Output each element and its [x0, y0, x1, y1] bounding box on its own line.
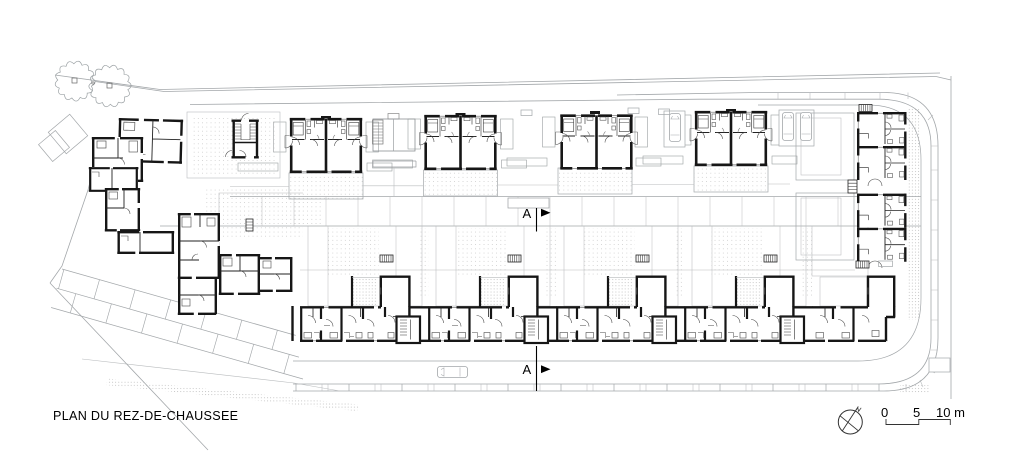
svg-text:0: 0: [881, 405, 888, 420]
svg-text:A: A: [523, 206, 532, 221]
svg-text:10 m: 10 m: [936, 405, 965, 420]
svg-text:A: A: [523, 362, 532, 377]
svg-text:PLAN DU REZ-DE-CHAUSSEE: PLAN DU REZ-DE-CHAUSSEE: [53, 409, 238, 423]
svg-text:5: 5: [913, 405, 920, 420]
